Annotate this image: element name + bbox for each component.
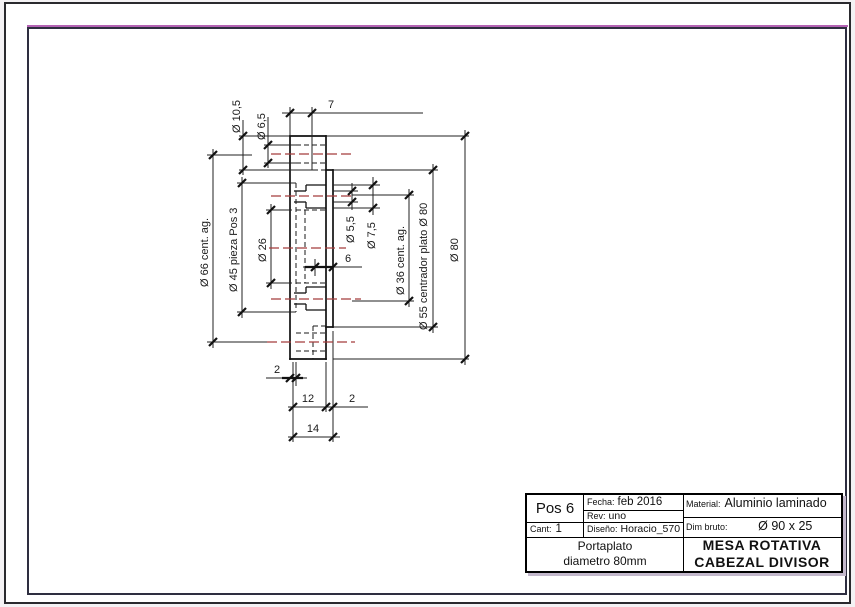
date-value: feb 2016 (618, 496, 663, 508)
dim-label-d7-5: Ø 7,5 (366, 222, 378, 249)
dim-label-d5-5: Ø 5,5 (345, 216, 357, 243)
dim-label-d55: Ø 55 centrador plato Ø 80 (418, 203, 430, 330)
project-title-line1: MESA ROTATIVA (703, 537, 822, 554)
part-name-cell: Portaplato diametro 80mm (527, 537, 683, 571)
part-name-line2: diametro 80mm (563, 554, 646, 569)
dim-label-len6: 6 (345, 253, 351, 265)
hidden-lines (296, 145, 326, 359)
dim-label-d80: Ø 80 (449, 238, 461, 262)
dim-label-d6-5: Ø 6,5 (256, 113, 268, 140)
stock-size-value: Ø 90 x 25 (732, 519, 839, 533)
material-value: Aluminio laminado (725, 496, 827, 510)
dimension-ticks (209, 109, 469, 441)
dim-label-d45: Ø 45 pieza Pos 3 (228, 208, 240, 292)
designer-cell: Diseño: Horacio_570 (583, 522, 683, 537)
project-title-line2: CABEZAL DIVISOR (694, 554, 830, 571)
date-cell: Fecha: feb 2016 (583, 495, 683, 510)
material-cell: Material: Aluminio laminado (683, 495, 841, 517)
centerlines (267, 154, 361, 342)
dim-label-d10-5: Ø 10,5 (231, 100, 243, 133)
revision-cell: Rev: uno (583, 510, 683, 522)
position-cell: Pos 6 (527, 495, 583, 522)
dim-label-d36: Ø 36 cent. ag. (395, 226, 407, 295)
dim-label-d26: Ø 26 (257, 238, 269, 262)
designer-label: Diseño: (587, 524, 618, 534)
dim-label-d66: Ø 66 cent. ag. (199, 218, 211, 287)
quantity-cell: Cant: 1 (527, 522, 583, 537)
project-title-cell: MESA ROTATIVA CABEZAL DIVISOR (683, 537, 841, 571)
dim-label-len2-left: 2 (274, 364, 280, 376)
dim-label-len7: 7 (328, 99, 334, 111)
title-block: Pos 6 Cant: 1 Fecha: feb 2016 Rev: uno D… (525, 493, 843, 573)
dim-label-len12: 12 (302, 393, 314, 405)
part-name-line1: Portaplato (578, 539, 633, 554)
designer-value: Horacio_570 (621, 523, 681, 535)
dim-label-len2-right: 2 (349, 393, 355, 405)
position-value: Pos 6 (536, 500, 574, 517)
quantity-value: 1 (556, 523, 562, 535)
stock-size-cell: Dim bruto: Ø 90 x 25 (683, 517, 841, 537)
material-label: Material: (686, 499, 721, 509)
date-label: Fecha: (587, 497, 615, 507)
dim-label-len14: 14 (307, 423, 319, 435)
stock-size-label: Dim bruto: (686, 522, 728, 532)
quantity-label: Cant: (530, 524, 552, 534)
revision-label: Rev: (587, 511, 606, 521)
revision-value: uno (609, 510, 627, 522)
